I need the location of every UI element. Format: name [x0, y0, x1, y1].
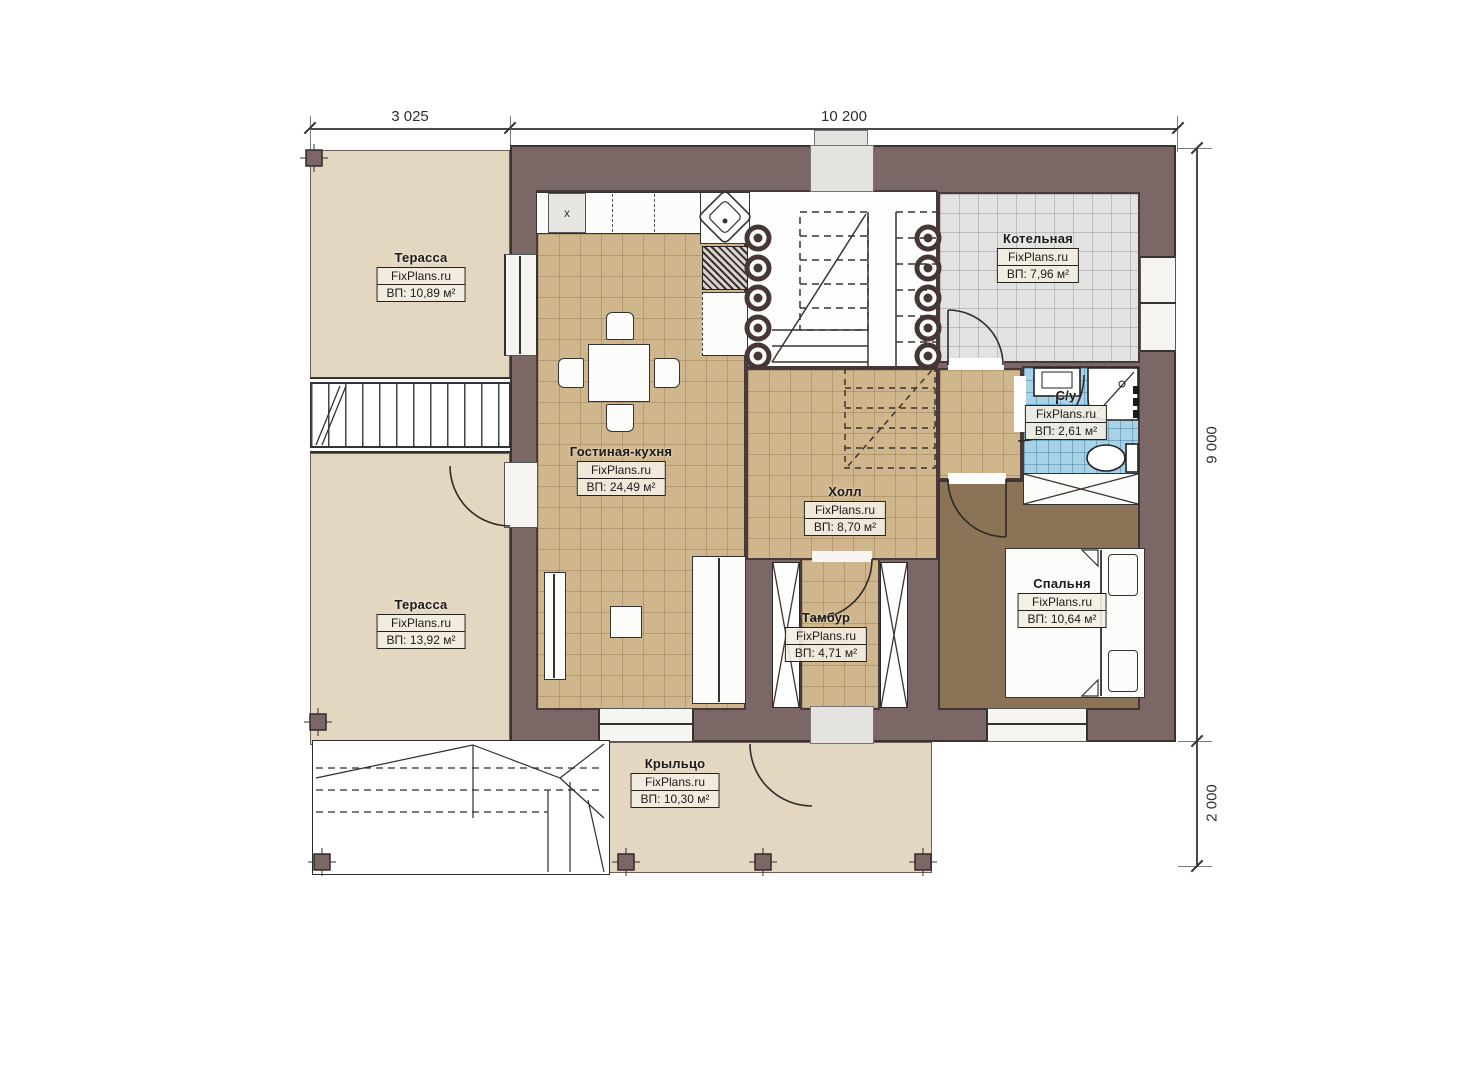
room-area: ВП: 10,64 м² — [1019, 611, 1106, 627]
room-brand: FixPlans.ru — [1019, 594, 1106, 611]
room-brand: FixPlans.ru — [998, 249, 1078, 266]
label-living-kitchen: Гостиная-кухня FixPlans.ru ВП: 24,49 м² — [570, 444, 672, 496]
room-name: Спальня — [1018, 576, 1107, 591]
room-name: Терасса — [377, 250, 466, 265]
label-terrace-bottom: Терасса FixPlans.ru ВП: 13,92 м² — [377, 597, 466, 649]
room-area: ВП: 7,96 м² — [998, 266, 1078, 282]
room-brand: FixPlans.ru — [1026, 406, 1106, 423]
room-area: ВП: 8,70 м² — [805, 519, 885, 535]
room-area: ВП: 10,30 м² — [632, 791, 719, 807]
room-area: ВП: 13,92 м² — [378, 632, 465, 648]
room-name: Гостиная-кухня — [570, 444, 672, 459]
room-area: ВП: 10,89 м² — [378, 285, 465, 301]
label-bathroom: С/у FixPlans.ru ВП: 2,61 м² — [1025, 388, 1107, 440]
plan-linework — [0, 0, 1473, 1080]
room-area: ВП: 4,71 м² — [786, 645, 866, 661]
room-name: Тамбур — [785, 610, 867, 625]
room-brand: FixPlans.ru — [578, 462, 665, 479]
label-bedroom: Спальня FixPlans.ru ВП: 10,64 м² — [1018, 576, 1107, 628]
column-row-left-icon — [747, 227, 769, 367]
room-area: ВП: 2,61 м² — [1026, 423, 1106, 439]
room-name: Холл — [804, 484, 886, 499]
room-name: Терасса — [377, 597, 466, 612]
room-area: ВП: 24,49 м² — [578, 479, 665, 495]
room-brand: FixPlans.ru — [632, 774, 719, 791]
label-porch: Крыльцо FixPlans.ru ВП: 10,30 м² — [631, 756, 720, 808]
label-hall: Холл FixPlans.ru ВП: 8,70 м² — [804, 484, 886, 536]
room-brand: FixPlans.ru — [786, 628, 866, 645]
stair-break-line — [316, 386, 346, 445]
sink-icon — [698, 190, 752, 244]
room-brand: FixPlans.ru — [805, 502, 885, 519]
room-brand: FixPlans.ru — [378, 615, 465, 632]
label-terrace-top: Терасса FixPlans.ru ВП: 10,89 м² — [377, 250, 466, 302]
door-arcs — [450, 310, 1084, 806]
room-name: Крыльцо — [631, 756, 720, 771]
toilet-icon — [1087, 445, 1125, 471]
column-row-right-icon — [917, 227, 939, 367]
staircase — [772, 212, 936, 468]
roof-lines — [316, 744, 604, 872]
room-name: Котельная — [997, 231, 1079, 246]
room-brand: FixPlans.ru — [378, 268, 465, 285]
label-vestibule: Тамбур FixPlans.ru ВП: 4,71 м² — [785, 610, 867, 662]
floor-plan-canvas: 3 025 10 200 9 000 2 000 x — [0, 0, 1473, 1080]
label-boiler: Котельная FixPlans.ru ВП: 7,96 м² — [997, 231, 1079, 283]
room-name: С/у — [1025, 388, 1107, 403]
